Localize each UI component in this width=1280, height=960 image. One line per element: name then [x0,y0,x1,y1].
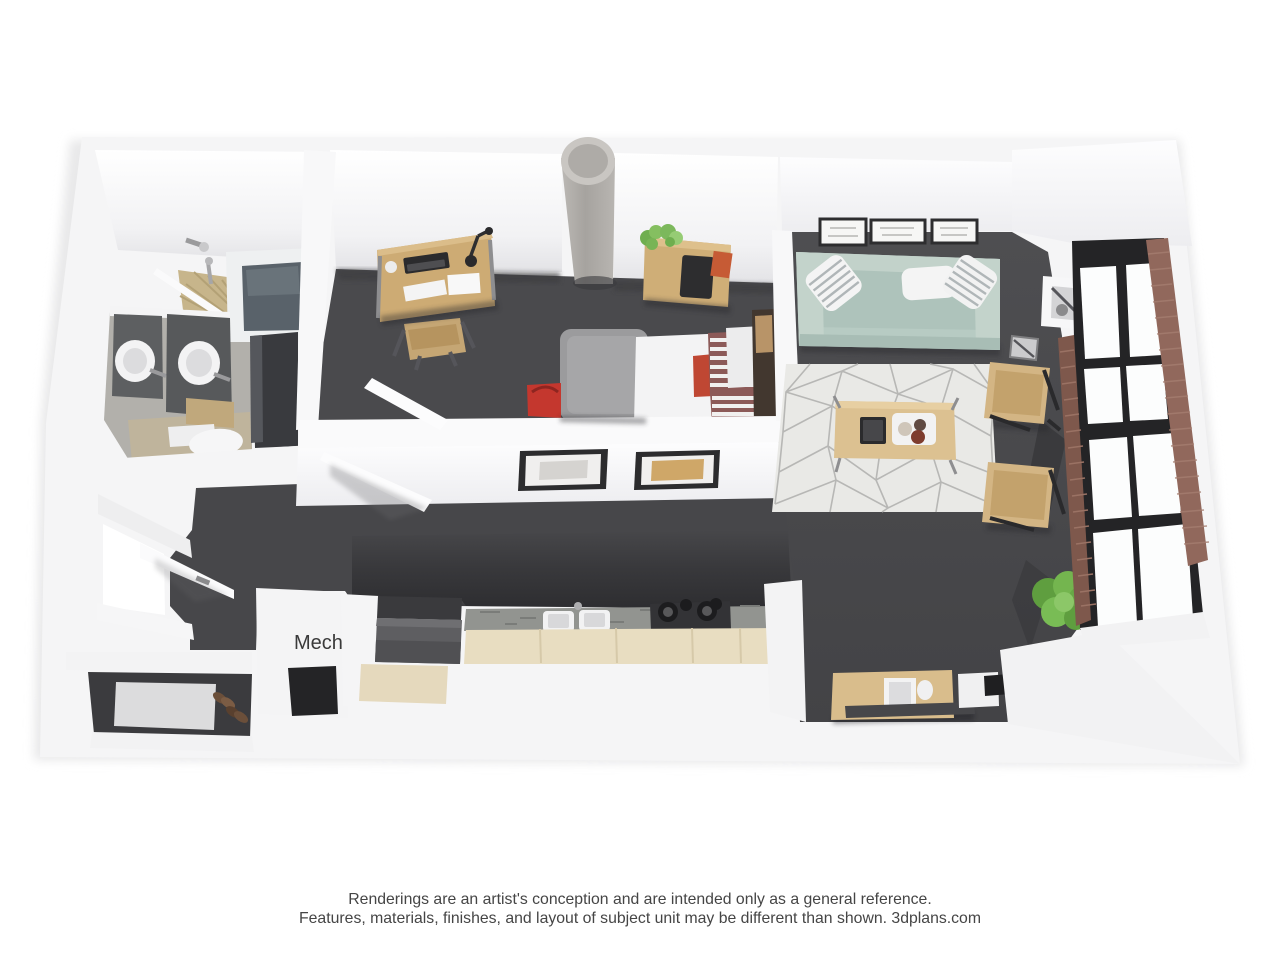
svg-text:Mech: Mech [294,632,343,654]
